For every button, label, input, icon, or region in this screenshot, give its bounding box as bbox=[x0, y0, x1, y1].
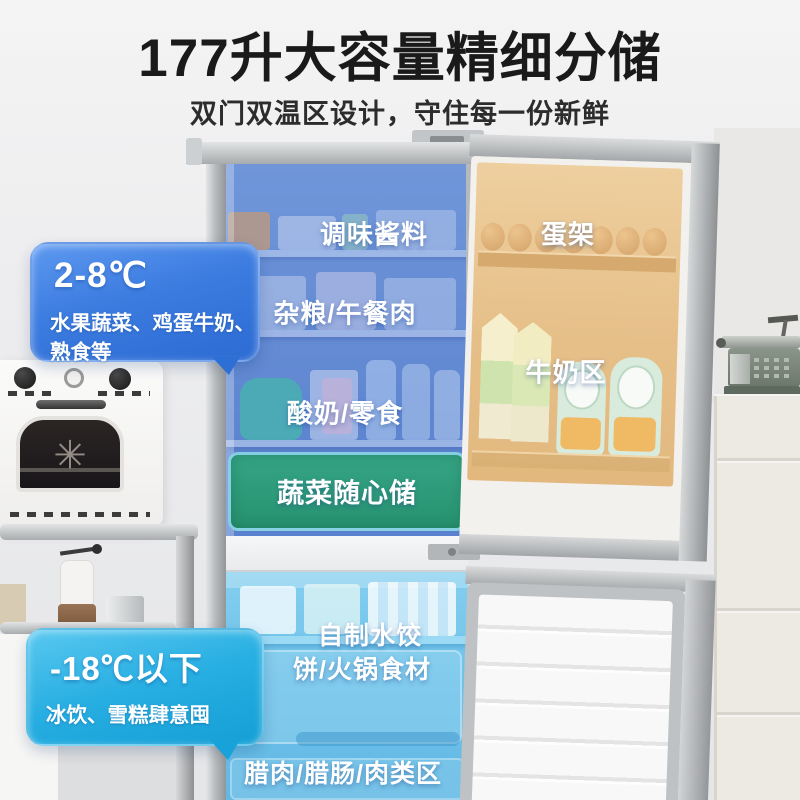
door-interior-orange-zone bbox=[467, 162, 683, 486]
oven-rack bbox=[20, 468, 120, 472]
zone-label-hotpot: 饼/火锅食材 bbox=[293, 650, 431, 686]
page-title: 177升大容量精细分储 bbox=[0, 16, 800, 92]
freezer-temp-value: -18℃以下 bbox=[50, 642, 203, 690]
zone-label-yogurt: 酸奶/零食 bbox=[287, 394, 403, 431]
typewriter-carriage bbox=[722, 336, 800, 348]
coffee-grinder bbox=[60, 560, 94, 606]
fridge-temp-desc-line1: 水果蔬菜、鸡蛋牛奶、 bbox=[50, 306, 255, 336]
egg bbox=[642, 227, 667, 256]
zone-label-grains: 杂粮/午餐肉 bbox=[273, 294, 416, 331]
product-detail-page: 177升大容量精细分储 双门双温区设计，守住每一份新鲜 ✳ bbox=[0, 0, 800, 800]
coffee-grinder-knob bbox=[92, 544, 102, 554]
frozen-container bbox=[240, 586, 296, 634]
cabinet-seam bbox=[717, 458, 800, 461]
cabinet-seam bbox=[717, 712, 800, 715]
pouch-food bbox=[560, 417, 601, 450]
oven-knob-left bbox=[14, 367, 36, 389]
oven-vent bbox=[98, 391, 150, 396]
egg-shelf bbox=[478, 250, 676, 272]
fridge-temp-desc-line2: 熟食等 bbox=[50, 335, 112, 365]
cart-shelf-top bbox=[0, 524, 198, 540]
oven-handle bbox=[36, 400, 106, 409]
pouch-label bbox=[616, 365, 655, 410]
box-prop bbox=[0, 584, 26, 626]
cabinet-right bbox=[714, 396, 800, 800]
freezer-temp-desc: 冰饮、雪糕肆意囤 bbox=[46, 698, 210, 728]
fridge-top-frame bbox=[186, 142, 474, 164]
oven-image: ✳ bbox=[0, 360, 163, 528]
zone-label-dumplings: 自制水饺 bbox=[318, 616, 422, 652]
typewriter-plate bbox=[730, 354, 750, 384]
zone-label-milk: 牛奶区 bbox=[525, 353, 606, 390]
fridge-middle-hinge-pin bbox=[448, 548, 456, 556]
typewriter-knob bbox=[716, 338, 726, 348]
zone-label-cured-meat: 腊肉/腊肠/肉类区 bbox=[244, 754, 442, 790]
egg bbox=[615, 227, 640, 256]
freezer-door-open bbox=[457, 566, 716, 800]
egg bbox=[507, 223, 532, 252]
sauce-pouch bbox=[608, 357, 663, 459]
pouch-food bbox=[613, 417, 656, 452]
page-subtitle: 双门双温区设计，守住每一份新鲜 bbox=[0, 92, 800, 131]
zone-label-veg-storage: 蔬菜随心储 bbox=[277, 472, 417, 511]
cabinet-seam bbox=[717, 608, 800, 611]
zone-label-condiments: 调味酱料 bbox=[320, 215, 428, 252]
zone-label-egg-rack: 蛋架 bbox=[541, 215, 595, 252]
oven-vent-bottom bbox=[10, 512, 150, 517]
freezer-door-liner bbox=[471, 594, 673, 800]
oven-gauge bbox=[64, 368, 84, 388]
oven-vent bbox=[8, 391, 56, 396]
oven-knob-right bbox=[109, 368, 131, 390]
oven-window: ✳ bbox=[16, 416, 124, 492]
egg bbox=[480, 222, 505, 251]
fridge-temp-value: 2-8℃ bbox=[54, 256, 148, 296]
fridge-temp-callout: 2-8℃ 水果蔬菜、鸡蛋牛奶、 熟食等 bbox=[30, 242, 260, 362]
fridge-top-frame-cap bbox=[186, 138, 202, 165]
freezer-temp-callout: -18℃以下 冰饮、雪糕肆意囤 bbox=[26, 628, 264, 746]
freezer-drawer-handle bbox=[296, 732, 460, 746]
